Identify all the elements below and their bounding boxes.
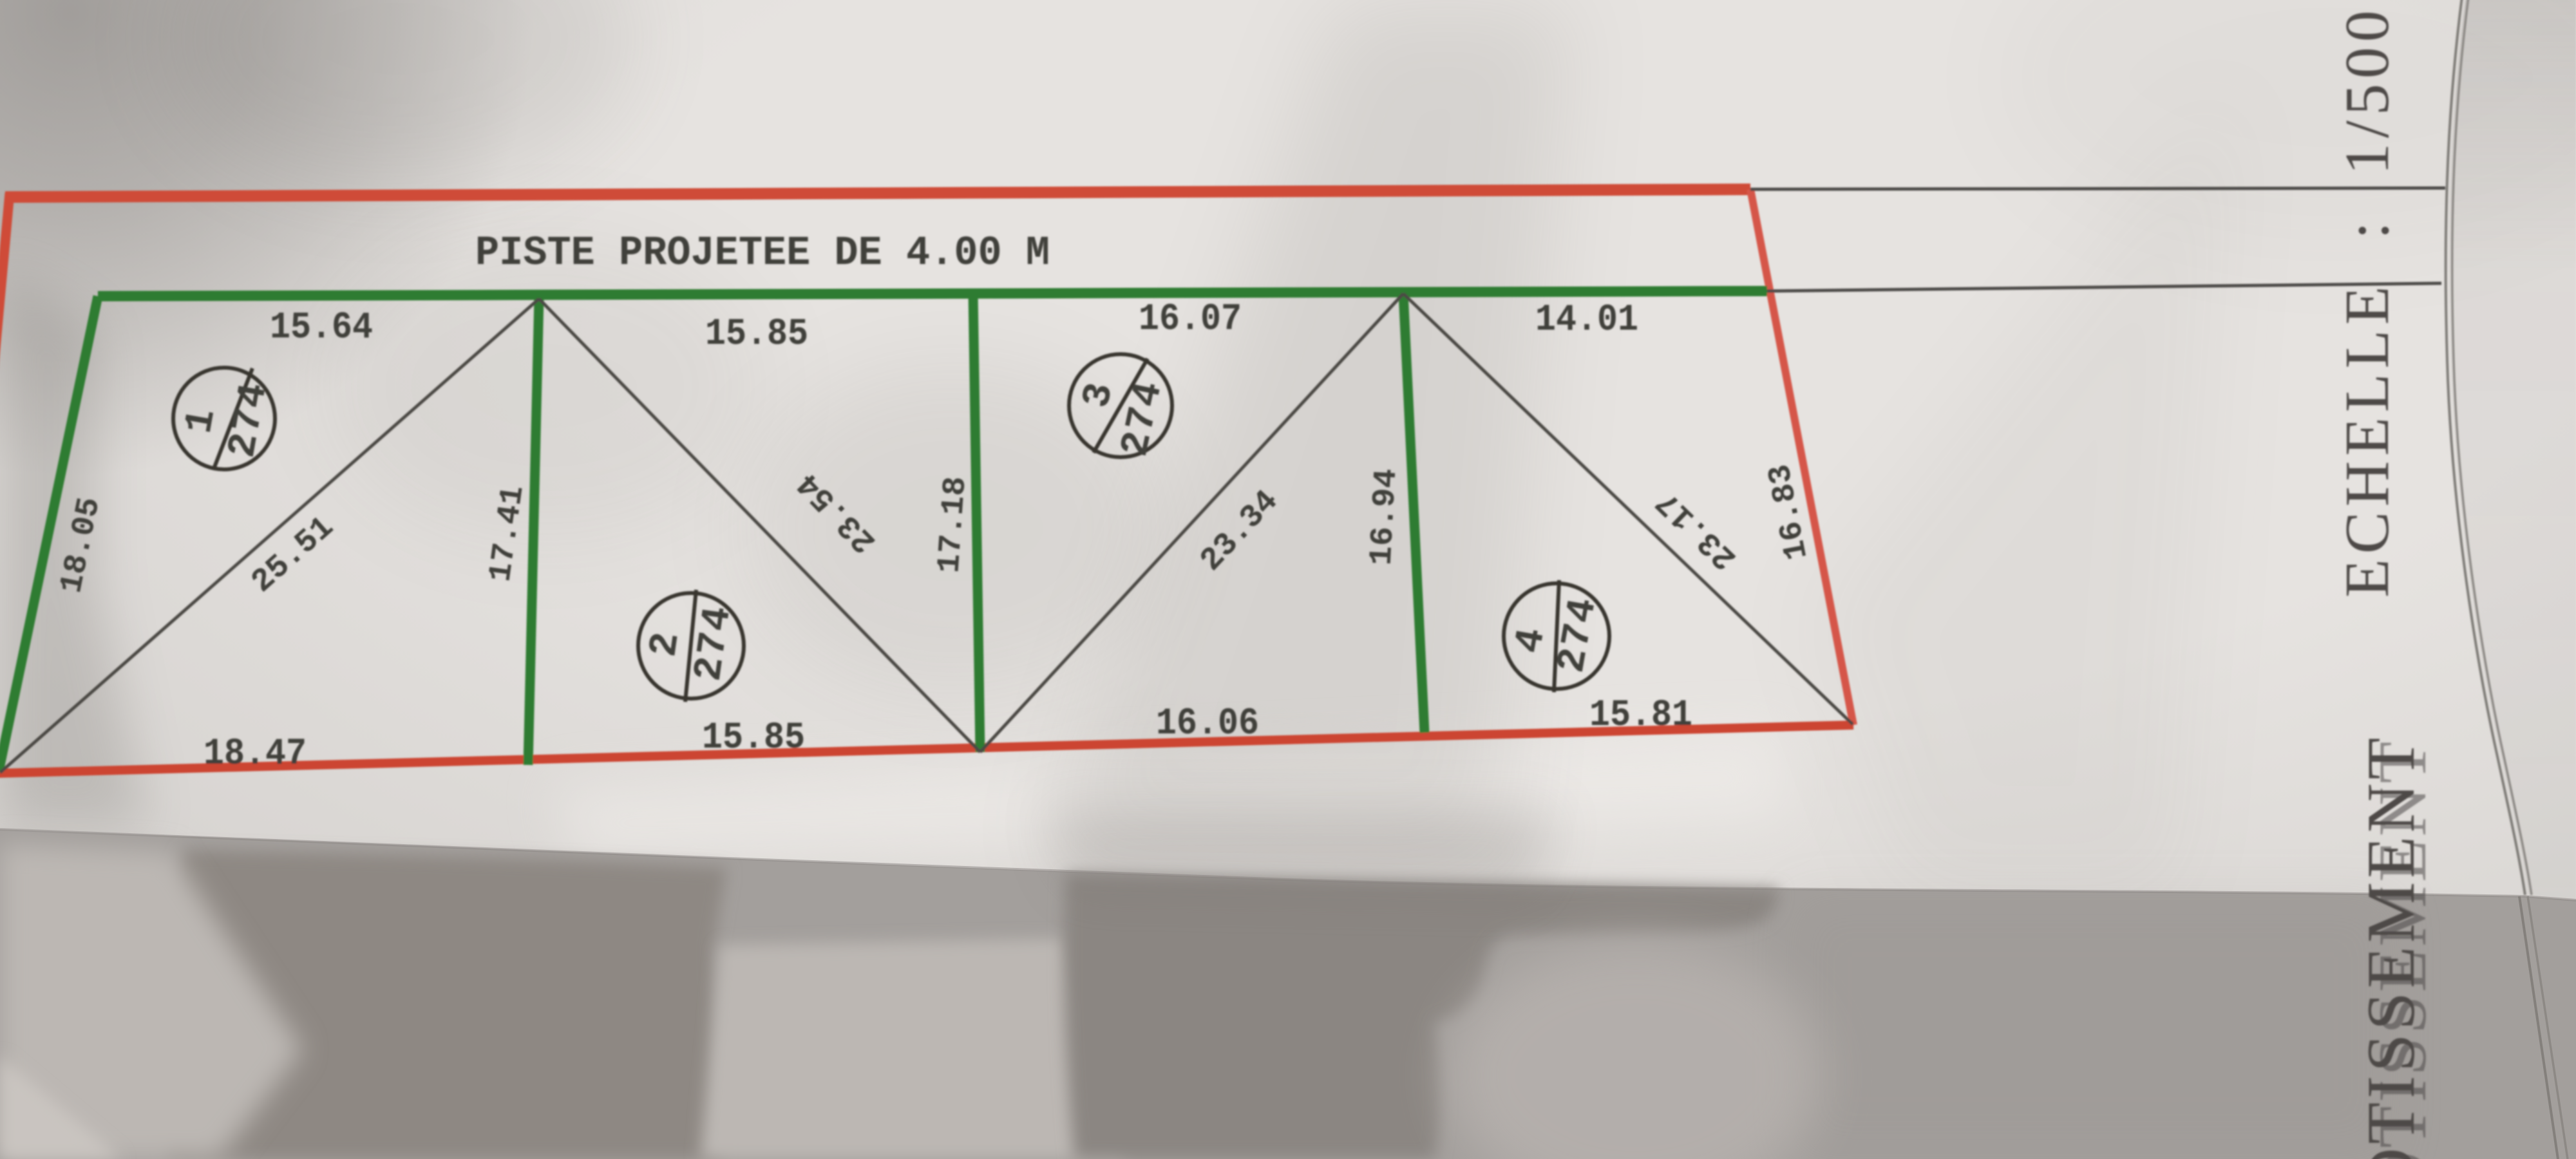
svg-text:15.85: 15.85 bbox=[705, 314, 808, 355]
svg-text:16.94: 16.94 bbox=[1364, 468, 1406, 567]
svg-text:ECHELLE : 1/500: ECHELLE : 1/500 bbox=[2333, 5, 2402, 598]
svg-text:15.64: 15.64 bbox=[270, 307, 373, 349]
svg-text:16.07: 16.07 bbox=[1139, 299, 1242, 341]
svg-text:15.81: 15.81 bbox=[1589, 695, 1692, 737]
svg-text:PISTE PROJETEE DE 4.00 M: PISTE PROJETEE DE 4.00 M bbox=[475, 231, 1050, 277]
svg-text:14.01: 14.01 bbox=[1535, 299, 1638, 341]
svg-text:16.06: 16.06 bbox=[1156, 703, 1259, 745]
svg-text:15.85: 15.85 bbox=[702, 717, 805, 759]
svg-text:18.47: 18.47 bbox=[204, 733, 307, 775]
svg-text:LOTISSEMENT: LOTISSEMENT bbox=[2353, 734, 2429, 1159]
svg-text:17.18: 17.18 bbox=[931, 475, 974, 574]
